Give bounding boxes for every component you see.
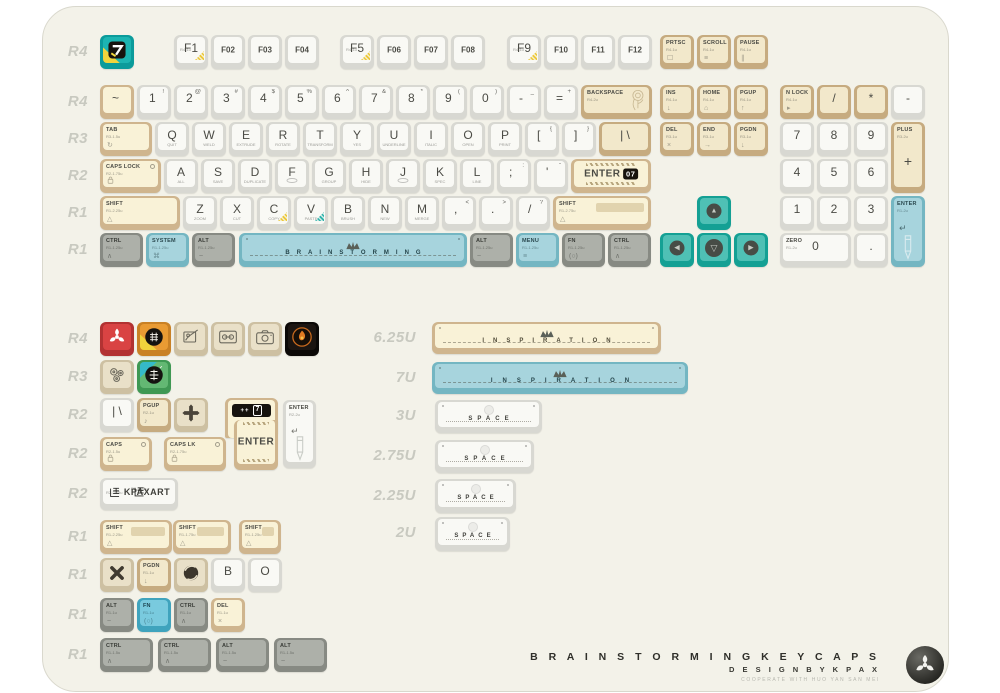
- key-np4: 4: [780, 159, 814, 193]
- key-semicolon: ;:: [497, 159, 531, 193]
- key-m: MMERGE: [405, 196, 439, 230]
- key-z: ZZOOM: [183, 196, 217, 230]
- key-tilde: ~`: [100, 85, 134, 119]
- key-equals: =+: [544, 85, 578, 119]
- key-np-zero: 0ZEROR1-2u: [780, 233, 851, 267]
- key-lshift: SHIFTR1-2.25u△: [100, 196, 180, 230]
- bl-del: DELR1-1u×: [211, 598, 245, 632]
- bar-625u: INSPIRATION: [432, 322, 661, 354]
- bl-alt-15b: ALTR1-1.5u~: [274, 638, 327, 672]
- key-minus: -_: [507, 85, 541, 119]
- row-size-label-r1: R1: [42, 204, 88, 221]
- row-size-label-r4: R4: [42, 43, 88, 60]
- bl-shift-175: SHIFTR1-1.75u△: [173, 520, 231, 554]
- key-n: NNEW: [368, 196, 402, 230]
- key-g: GGROUP: [312, 159, 346, 193]
- key-k: KSPEC: [423, 159, 457, 193]
- key-np5: 5: [817, 159, 851, 193]
- key-np-plus: PLUSR3-2u+: [891, 122, 925, 193]
- row-size-label-r2: R2: [42, 485, 88, 502]
- brand-subtitle: D E S I G N B Y K P A X: [530, 665, 880, 674]
- key-backspace: BACKSPACER4-2u: [581, 85, 652, 119]
- bar-2u: SPACE: [435, 517, 510, 551]
- key-rshift: SHIFTR1-2.75u△: [553, 196, 651, 230]
- key-p: PPRINT: [488, 122, 522, 156]
- key-system: SYSTEMR1-1.25u⌘: [146, 233, 189, 267]
- key-np-minus: -: [891, 85, 925, 119]
- key-lbracket: [{: [525, 122, 559, 156]
- key-f03: F03: [248, 35, 282, 69]
- key-2: 2@: [174, 85, 208, 119]
- bl-iso-enter-bottom: ENTER: [234, 420, 278, 470]
- key-scroll: SCROLLR4-1u≡: [697, 35, 731, 69]
- key-arrow-down: ▽: [697, 233, 731, 267]
- key-f1: F1R4-1u: [174, 35, 208, 69]
- row-size-label-r1: R1: [42, 566, 88, 583]
- key-lctrl: CTRLR1-1.25u∧: [100, 233, 143, 267]
- bl-novelty-kpax-red: [100, 322, 134, 356]
- key-f07: F07: [414, 35, 448, 69]
- key-4: 4$: [248, 85, 282, 119]
- key-f10: F10: [544, 35, 578, 69]
- key-f06: F06: [377, 35, 411, 69]
- key-backslash: | \: [599, 122, 651, 156]
- key-arrow-left: ◀: [660, 233, 694, 267]
- key-np-divide: /: [817, 85, 851, 119]
- key-f12: F12: [618, 35, 652, 69]
- key-5: 5%: [285, 85, 319, 119]
- key-w: WWELD: [192, 122, 226, 156]
- key-h: HHIDE: [349, 159, 383, 193]
- key-np2: 2: [817, 196, 851, 230]
- bl-novelty-film: [211, 322, 245, 356]
- key-j: J: [386, 159, 420, 193]
- row-size-label-r2: R2: [42, 167, 88, 184]
- brand-cooperate: COOPERATE WITH HUO YAN SAN MEI: [530, 677, 880, 683]
- key-pgup: PGUPR4-1u↑: [734, 85, 768, 119]
- key-np7: 7: [780, 122, 814, 156]
- bl-alt-15a: ALTR1-1.5u~: [216, 638, 269, 672]
- key-f04: F04: [285, 35, 319, 69]
- bl-novelty-globe: [174, 558, 208, 592]
- key-i: IITALIC: [414, 122, 448, 156]
- key-o: OOPEN: [451, 122, 485, 156]
- key-3: 3#: [211, 85, 245, 119]
- row-size-label-275u: 2.75U: [370, 447, 416, 464]
- key-r: RROTATE: [266, 122, 300, 156]
- bl-novelty-camera: [248, 322, 282, 356]
- key-slash: /?: [516, 196, 550, 230]
- key-np-dot: .: [854, 233, 888, 267]
- bl-enter-white: ENTERR2-2u↵: [283, 400, 316, 468]
- key-esc: [100, 35, 134, 69]
- key-quote: '": [534, 159, 568, 193]
- key-np8: 8: [817, 122, 851, 156]
- key-pause: PAUSER4-1u∥: [734, 35, 768, 69]
- key-f11: F11: [581, 35, 615, 69]
- key-t: TTRANSFORM: [303, 122, 337, 156]
- bl-capslk: CAPS LKR2-1.75u: [164, 437, 226, 471]
- key-rctrl: CTRLR1-1.25u∧: [608, 233, 651, 267]
- key-y: YYES: [340, 122, 374, 156]
- bl-kpaxart: R2-2.25uKPAXARTR2-2.25u: [100, 478, 178, 510]
- bl-shift-225: SHIFTR1-2.25u△: [100, 520, 172, 554]
- bl-backslash: | \: [100, 398, 134, 432]
- key-comma: ,<: [442, 196, 476, 230]
- key-v: VPASTE: [294, 196, 328, 230]
- bl-novelty-x: [100, 558, 134, 592]
- key-end: ENDR3-1u→: [697, 122, 731, 156]
- row-size-label-r1: R1: [42, 528, 88, 545]
- key-np3: 3: [854, 196, 888, 230]
- row-size-label-r1: R1: [42, 646, 88, 663]
- key-lalt: ALTR1-1.25u~: [192, 233, 235, 267]
- key-arrow-up: ▲: [697, 196, 731, 230]
- bl-novelty-gears: [100, 360, 134, 394]
- bl-novelty-bomb: [137, 360, 171, 394]
- key-0: 0): [470, 85, 504, 119]
- key-1: 1!: [137, 85, 171, 119]
- row-size-label-3u: 3U: [370, 407, 416, 424]
- bl-novelty-brain: [137, 322, 171, 356]
- bl-novelty-flame: [285, 322, 319, 356]
- bl-caps: CAPSR2-1.5u: [100, 437, 152, 471]
- key-enter: ENTER07: [571, 159, 651, 193]
- kpax-sphere-logo-icon: [905, 645, 945, 685]
- row-size-label-r1: R1: [42, 241, 88, 258]
- row-size-label-7u: 7U: [370, 369, 416, 386]
- key-ins: INSR4-1u↓: [660, 85, 694, 119]
- key-fn: FNR1-1.25u(○): [562, 233, 605, 267]
- keycap-set-poster: F1R4-1uF02F03F04F5R4-1uF06F07F08F9R4-1uF…: [0, 0, 1000, 693]
- row-size-label-225u: 2.25U: [370, 487, 416, 504]
- bl-shift-125: SHIFTR1-1.25u△: [239, 520, 281, 554]
- key-9: 9(: [433, 85, 467, 119]
- key-spacebar: BRAINSTORMING: [239, 233, 467, 267]
- key-s: SSAVE: [201, 159, 235, 193]
- key-l: LLINE: [460, 159, 494, 193]
- key-d: DDUPLICATE: [238, 159, 272, 193]
- branding-block: B R A I N S T O R M I N G K E Y C A P S …: [530, 651, 880, 683]
- bar-275u: SPACE: [435, 440, 534, 473]
- key-a: AALL: [164, 159, 198, 193]
- bl-dpad: [174, 398, 208, 432]
- key-f02: F02: [211, 35, 245, 69]
- row-size-label-r3: R3: [42, 368, 88, 385]
- key-e: EEXTRUDE: [229, 122, 263, 156]
- key-ralt: ALTR1-1.25u~: [470, 233, 513, 267]
- key-q: QQUIT: [155, 122, 189, 156]
- key-np-enter: ENTERR1-2u↵: [891, 196, 925, 267]
- key-rbracket: ]}: [562, 122, 596, 156]
- row-size-label-625u: 6.25U: [370, 329, 416, 346]
- row-size-label-r4: R4: [42, 93, 88, 110]
- key-np1: 1: [780, 196, 814, 230]
- bar-3u: SPACE: [435, 400, 542, 433]
- bar-225u: SPACE: [435, 479, 516, 513]
- key-tab: TABR3-1.5u↻: [100, 122, 152, 156]
- row-size-label-r2: R2: [42, 445, 88, 462]
- bl-pgup: PGUPR2-1u♪: [137, 398, 171, 432]
- bl-novelty-artboard: [174, 322, 208, 356]
- key-del: DELR3-1u×: [660, 122, 694, 156]
- bl-o: O: [248, 558, 282, 592]
- bl-ctrl: CTRLR1-1u∧: [174, 598, 208, 632]
- key-f: F: [275, 159, 309, 193]
- bl-fn: FNR1-1u(○): [137, 598, 171, 632]
- key-np-multiply: *: [854, 85, 888, 119]
- row-size-label-2u: 2U: [370, 524, 416, 541]
- bar-7u: INSPIRATION: [432, 362, 688, 394]
- key-prtsc: PRTSCR4-1u☐: [660, 35, 694, 69]
- key-menu: MENUR1-1.25u≡: [516, 233, 559, 267]
- row-size-label-r3: R3: [42, 130, 88, 147]
- key-6: 6^: [322, 85, 356, 119]
- key-u: UUNDERLINE: [377, 122, 411, 156]
- key-x: XCUT: [220, 196, 254, 230]
- key-f9: F9R4-1u: [507, 35, 541, 69]
- bl-ctrl-15b: CTRLR1-1.5u∧: [158, 638, 211, 672]
- key-7: 7&: [359, 85, 393, 119]
- key-np9: 9: [854, 122, 888, 156]
- key-pgdn: PGDNR3-1u↓: [734, 122, 768, 156]
- key-c: CCOPY: [257, 196, 291, 230]
- row-size-label-r1: R1: [42, 606, 88, 623]
- key-f5: F5R4-1u: [340, 35, 374, 69]
- key-capslock: CAPS LOCKR2-1.75u: [100, 159, 161, 193]
- key-8: 8*: [396, 85, 430, 119]
- key-home: HOMER4-1u⌂: [697, 85, 731, 119]
- bl-pgdn: PGDNR1-1u↓: [137, 558, 171, 592]
- row-size-label-r2: R2: [42, 406, 88, 423]
- bl-ctrl-15a: CTRLR1-1.5u∧: [100, 638, 153, 672]
- key-period: .>: [479, 196, 513, 230]
- key-b: BBRUSH: [331, 196, 365, 230]
- key-numlock: N LOCKR4-1u▸: [780, 85, 814, 119]
- brand-title: B R A I N S T O R M I N G K E Y C A P S: [530, 651, 880, 663]
- bl-b: B: [211, 558, 245, 592]
- row-size-label-r4: R4: [42, 330, 88, 347]
- bl-alt: ALTR1-1u~: [100, 598, 134, 632]
- key-f08: F08: [451, 35, 485, 69]
- key-np6: 6: [854, 159, 888, 193]
- key-arrow-right: ▶: [734, 233, 768, 267]
